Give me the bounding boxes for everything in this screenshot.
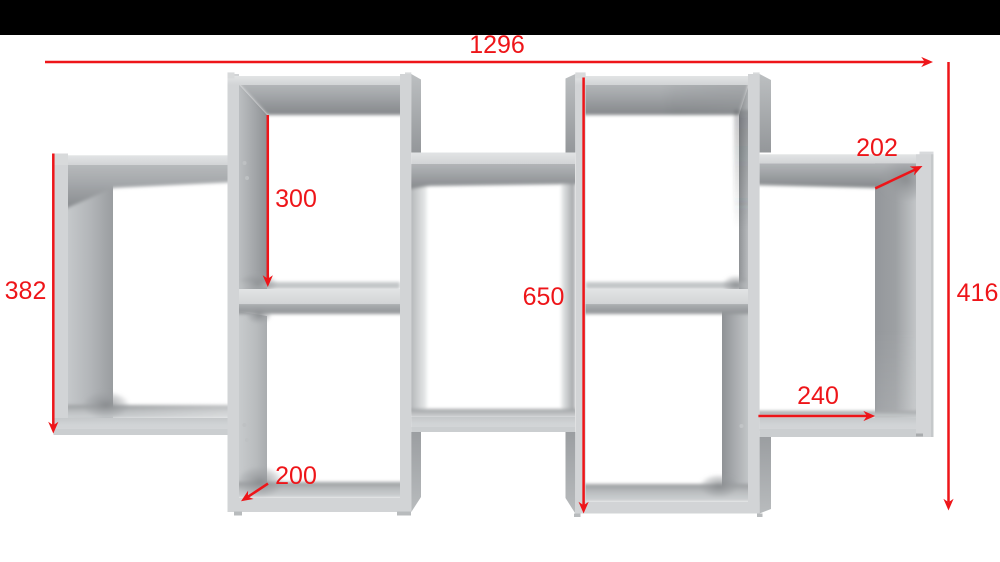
svg-text:416: 416 — [957, 279, 999, 307]
svg-text:240: 240 — [797, 382, 839, 410]
svg-text:1296: 1296 — [469, 31, 525, 59]
svg-text:382: 382 — [5, 277, 47, 305]
svg-text:650: 650 — [523, 283, 565, 311]
svg-text:300: 300 — [275, 185, 317, 213]
svg-text:200: 200 — [275, 462, 317, 490]
svg-text:202: 202 — [856, 134, 898, 162]
